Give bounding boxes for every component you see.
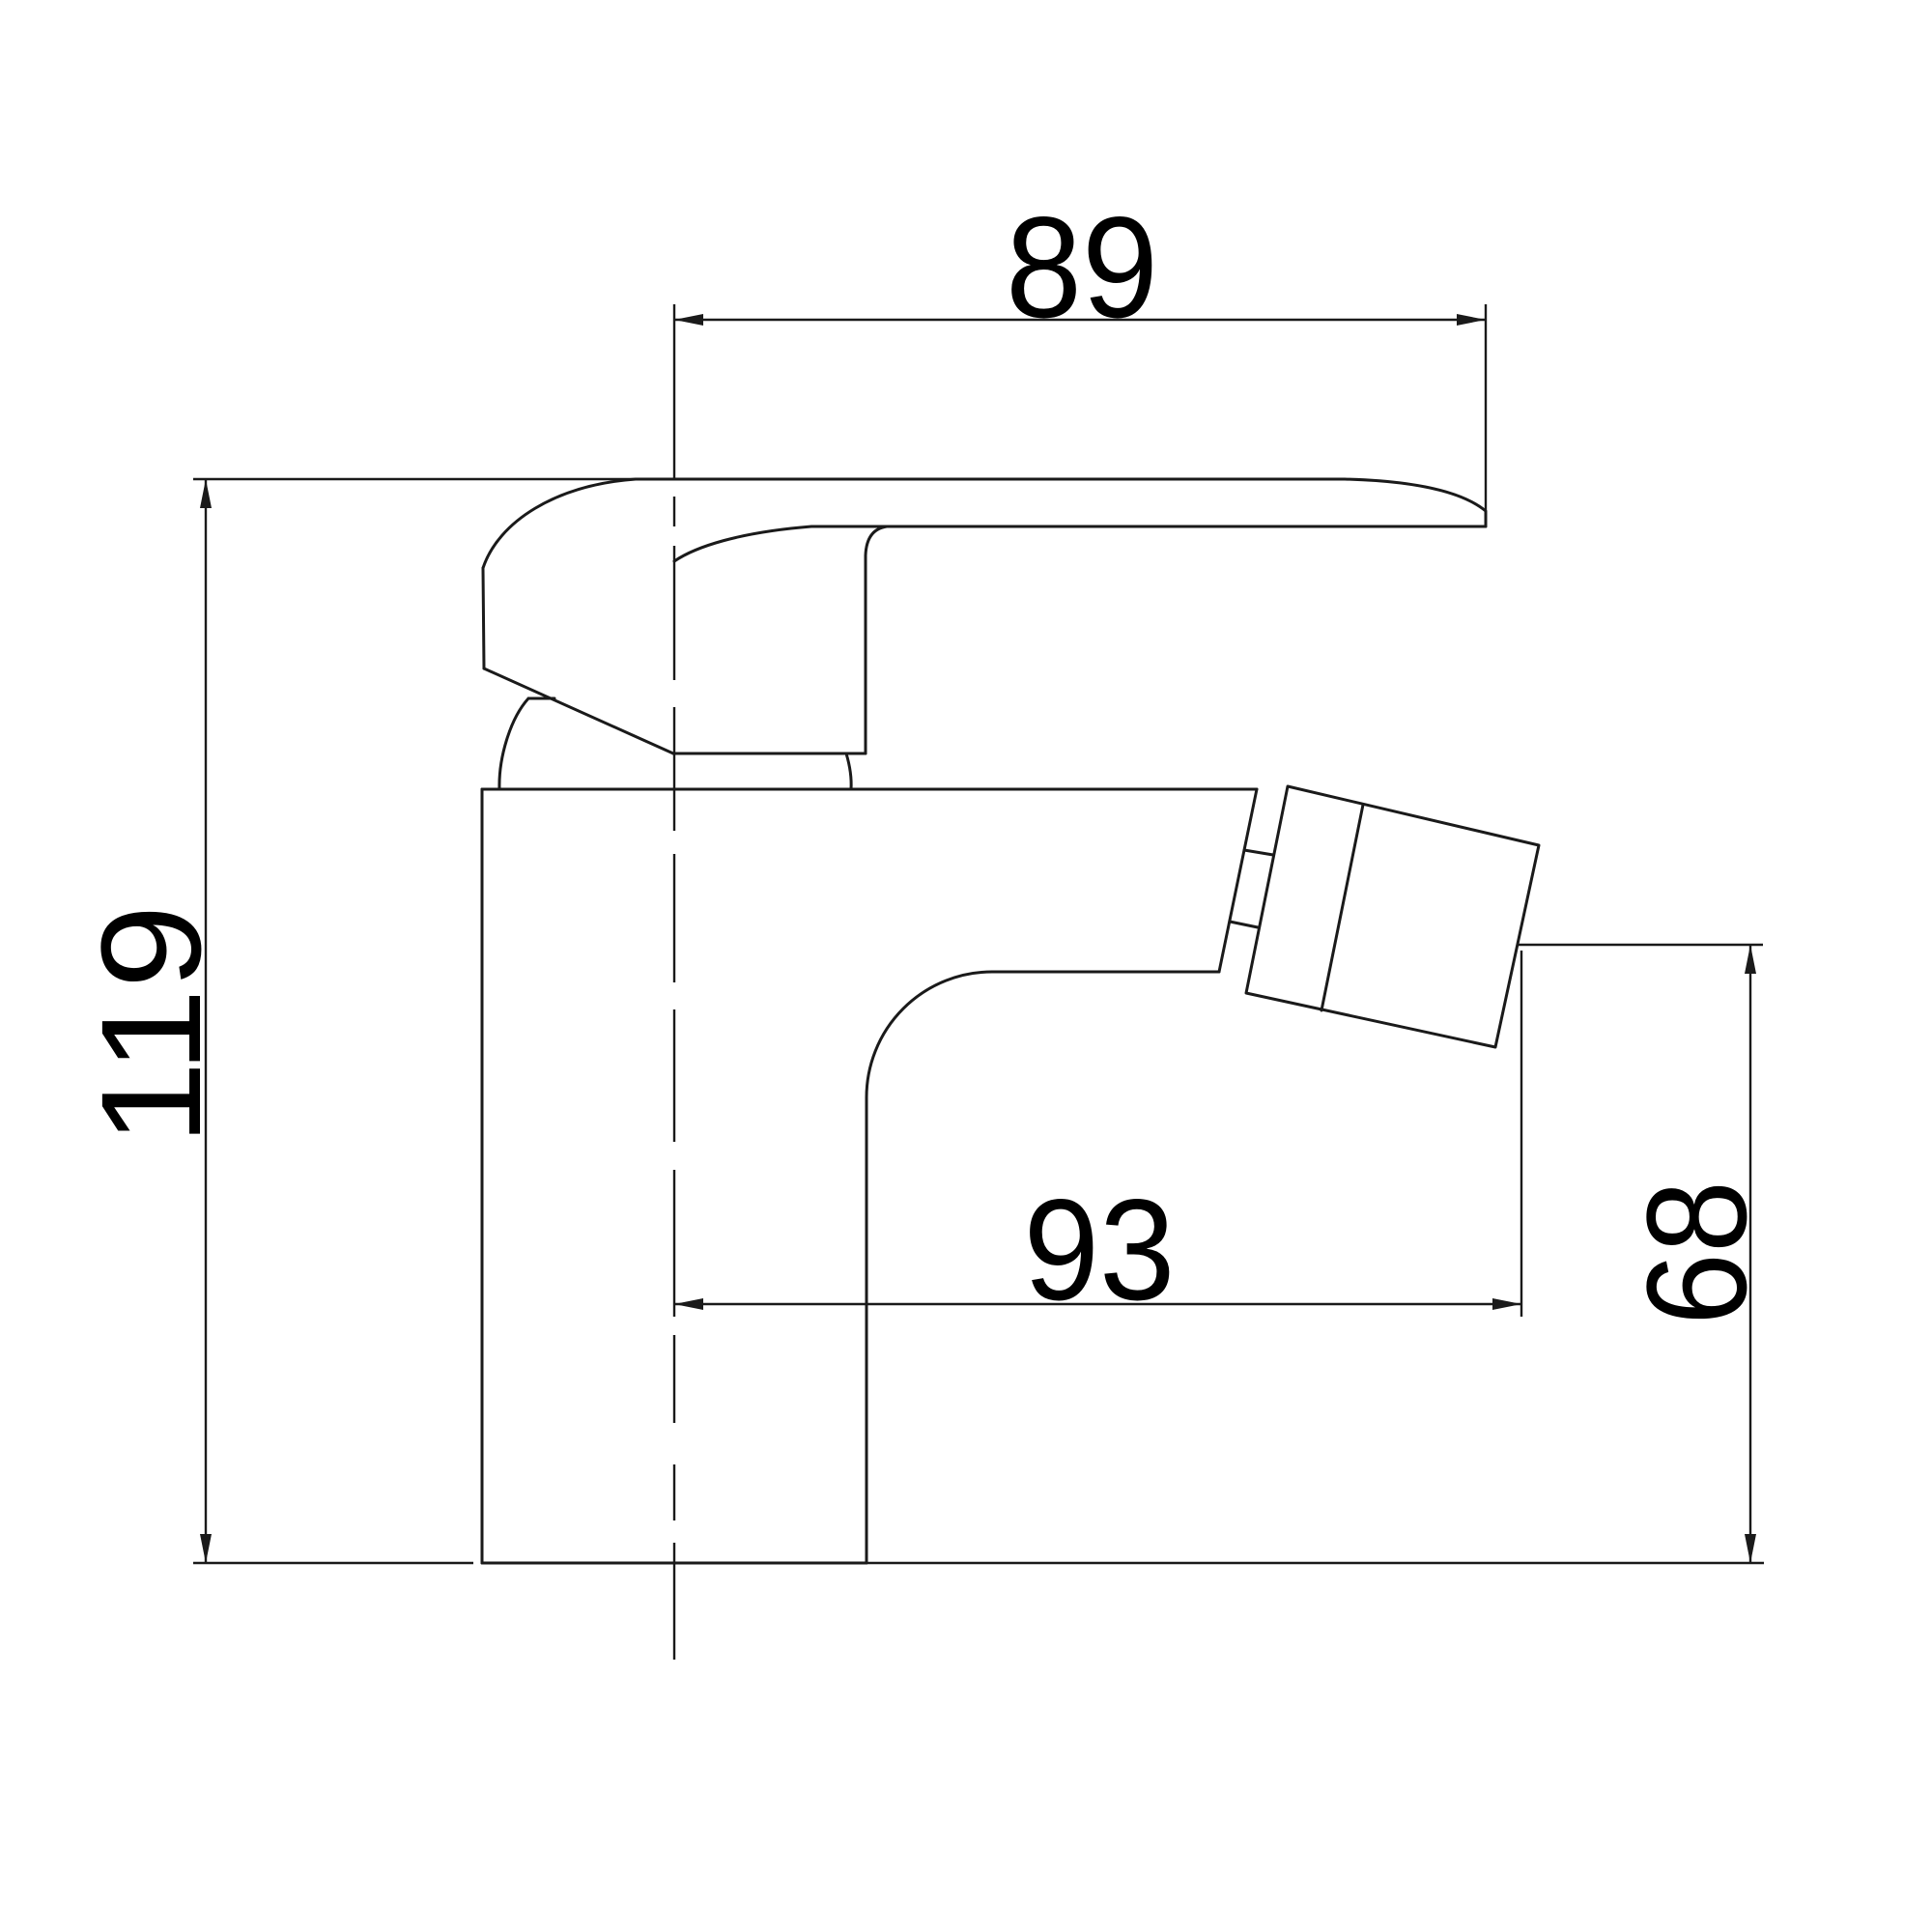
svg-text:89: 89 [1006,186,1158,348]
svg-text:119: 119 [72,905,231,1146]
svg-text:93: 93 [1024,1169,1176,1330]
svg-text:68: 68 [1618,1180,1776,1325]
